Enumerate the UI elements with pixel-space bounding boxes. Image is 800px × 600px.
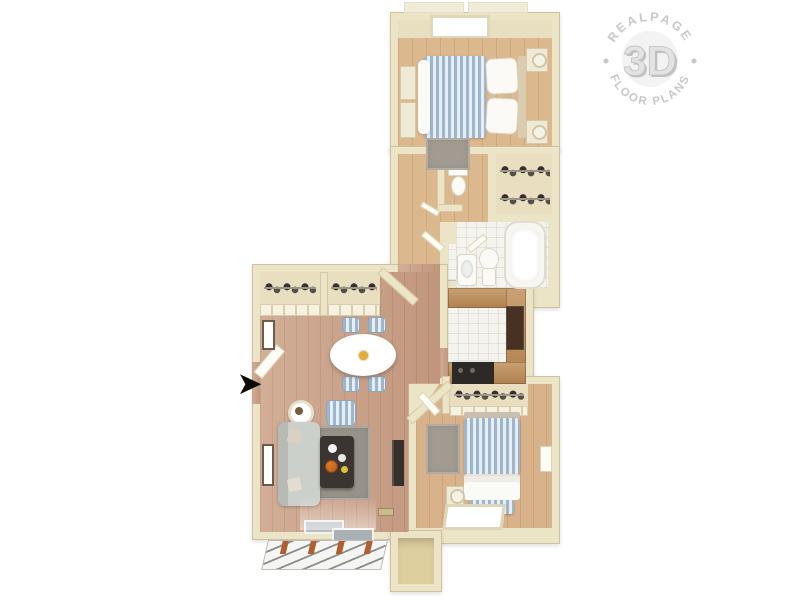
watermark-3d-text: 3D <box>623 37 677 84</box>
tv-stand <box>392 440 404 486</box>
entry-arrow: ➤ <box>238 370 261 398</box>
closet-rod <box>331 287 377 289</box>
top-bedroom-window <box>430 15 490 39</box>
closet-rod <box>500 170 550 172</box>
patio-post <box>308 541 317 554</box>
floor-vent <box>378 508 394 516</box>
sofa-pillow <box>287 477 302 492</box>
patio-deck <box>261 540 388 570</box>
bathtub-basin <box>510 228 540 282</box>
table-centerpiece <box>359 351 368 360</box>
bed-headboard <box>518 56 526 138</box>
bed-pillow <box>485 97 519 135</box>
floor-light-sheen <box>300 496 376 530</box>
dining-chair <box>342 376 360 392</box>
bathroom-door-opening <box>448 244 456 280</box>
refrigerator <box>506 306 524 350</box>
dining-chair <box>342 317 360 333</box>
closet-door <box>540 446 552 472</box>
bed-duvet <box>424 56 486 138</box>
closet-rod <box>264 287 316 289</box>
toilet-base <box>482 268 496 286</box>
storage-box-floor <box>398 538 434 584</box>
roof-strip <box>468 2 528 13</box>
closet-rod <box>454 394 524 396</box>
wall-picture-frame <box>262 320 275 350</box>
closet-divider-wall <box>320 272 328 316</box>
watermark-dot-icon <box>604 59 609 64</box>
dining-chair <box>368 376 386 392</box>
bed-blanket <box>418 60 430 134</box>
bedroom-rug <box>426 138 470 170</box>
living-closet-2-bifold-doors <box>328 304 380 316</box>
stove-burner <box>458 368 463 373</box>
bed-duvet <box>464 418 520 474</box>
kitchen-door-opening <box>440 348 448 378</box>
table-lamp <box>532 125 547 140</box>
dresser <box>400 66 416 100</box>
wc-wall <box>437 204 463 212</box>
patio-post <box>336 541 345 554</box>
armchair <box>326 400 356 426</box>
dresser <box>400 102 416 138</box>
bedroom-rug <box>426 424 460 474</box>
table-lamp <box>532 53 547 68</box>
bed-blanket <box>464 474 520 500</box>
bed-pillow <box>485 57 519 95</box>
bottom-bedroom-window <box>442 504 506 530</box>
plate <box>328 444 337 453</box>
sink-basin <box>461 260 473 278</box>
sofa-backrest <box>278 422 288 506</box>
wall-picture-frame <box>262 444 274 486</box>
plant <box>295 407 303 415</box>
watermark-dot-icon <box>692 59 697 64</box>
patio-post <box>364 541 373 554</box>
corridor-opening <box>398 264 440 272</box>
stove-burner <box>470 368 475 373</box>
toilet-bowl <box>479 248 499 270</box>
floor-plan-canvas: ➤ REALPAGE <box>0 0 800 600</box>
realpage-3d-floorplans-watermark: REALPAGE FLOOR PLANS 3D 3D <box>590 0 710 119</box>
dining-chair <box>368 317 386 333</box>
patio-post <box>280 541 289 554</box>
plate <box>338 454 346 462</box>
closet-rod <box>500 198 550 200</box>
living-closet-1-bifold-doors <box>260 304 320 316</box>
bowl <box>341 466 348 473</box>
basketball <box>325 460 338 473</box>
table-lamp <box>450 489 465 504</box>
roof-strip <box>404 2 464 13</box>
wc-toilet-bowl <box>451 176 466 196</box>
